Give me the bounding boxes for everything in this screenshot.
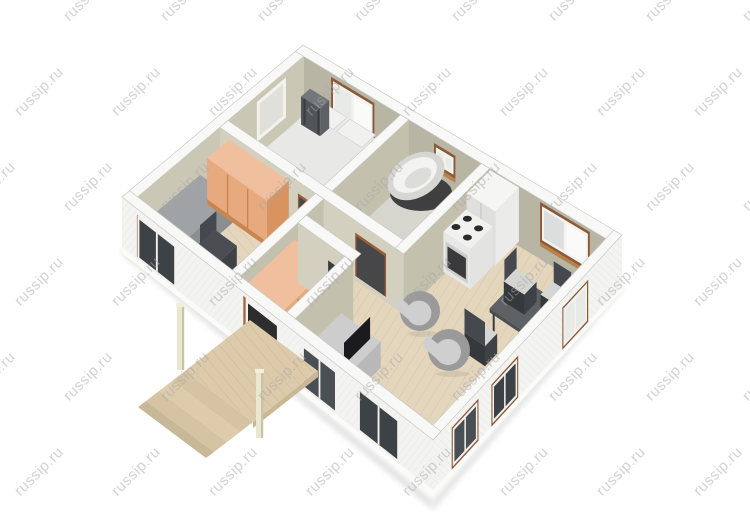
house-3d-scene	[0, 0, 750, 520]
floor-plan-render: russip.rurussip.rurussip.rurussip.ruruss…	[0, 0, 750, 520]
